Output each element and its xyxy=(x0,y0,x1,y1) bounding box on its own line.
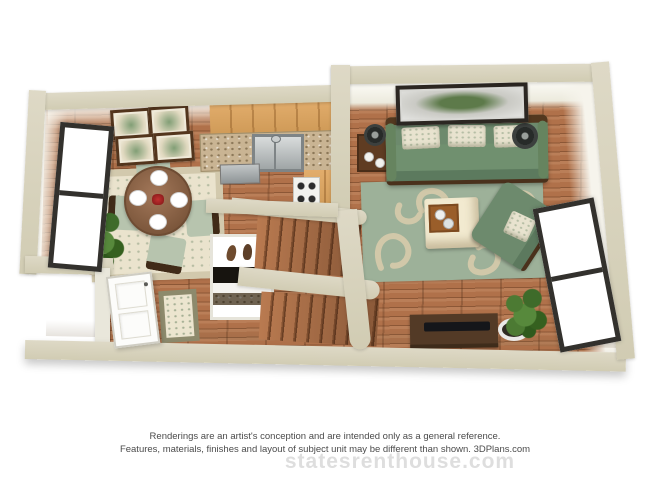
ottoman xyxy=(424,197,480,249)
table-lamp-left xyxy=(364,124,386,146)
tree-art xyxy=(402,88,523,119)
sofa-armrest-left xyxy=(386,123,397,181)
living-plant xyxy=(500,288,552,340)
wall-art-frame xyxy=(153,131,195,164)
table-centerpiece xyxy=(152,194,164,205)
shoe xyxy=(225,244,237,262)
table-lamp-right xyxy=(512,123,538,149)
front-door xyxy=(106,271,160,348)
tv xyxy=(424,321,490,331)
ottoman-tray xyxy=(428,204,459,233)
door-mat xyxy=(158,289,200,344)
wall-art xyxy=(158,136,189,158)
sofa-pillow xyxy=(448,125,486,147)
cup xyxy=(375,158,385,168)
sofa-armrest-right xyxy=(538,121,549,179)
dining-table xyxy=(124,166,192,236)
door-panel xyxy=(115,280,148,309)
door-panel xyxy=(118,310,151,339)
disclaimer-line-2: Features, materials, finishes and layout… xyxy=(0,443,650,456)
cup xyxy=(443,218,454,229)
floorplan-rendering: statesrenthouse.com Renderings are an ar… xyxy=(0,0,650,488)
wall-art xyxy=(153,110,184,132)
faucet xyxy=(271,135,281,143)
kitchen-living-divider-wall xyxy=(331,65,350,217)
dishwasher xyxy=(220,163,261,184)
tree-picture-frame xyxy=(395,82,528,125)
wall-art xyxy=(120,139,151,161)
kitchen-side-counter xyxy=(303,132,334,172)
window-mullion xyxy=(59,190,103,199)
wall-art-frame xyxy=(115,134,157,167)
plate xyxy=(149,214,167,230)
living-top-wall xyxy=(331,64,601,85)
dining-chair-south xyxy=(145,233,187,275)
door-knob xyxy=(144,282,148,286)
sofa-pillow xyxy=(401,126,440,150)
plate xyxy=(150,170,168,186)
disclaimer-line-1: Renderings are an artist's conception an… xyxy=(0,430,650,443)
plate xyxy=(170,192,188,208)
door-mat-inner xyxy=(164,294,195,338)
window-mullion xyxy=(551,267,603,282)
cup xyxy=(364,152,374,162)
disclaimer-block: Renderings are an artist's conception an… xyxy=(0,430,650,456)
plate xyxy=(129,190,147,206)
shoe xyxy=(242,244,252,261)
wall-art xyxy=(115,113,146,135)
